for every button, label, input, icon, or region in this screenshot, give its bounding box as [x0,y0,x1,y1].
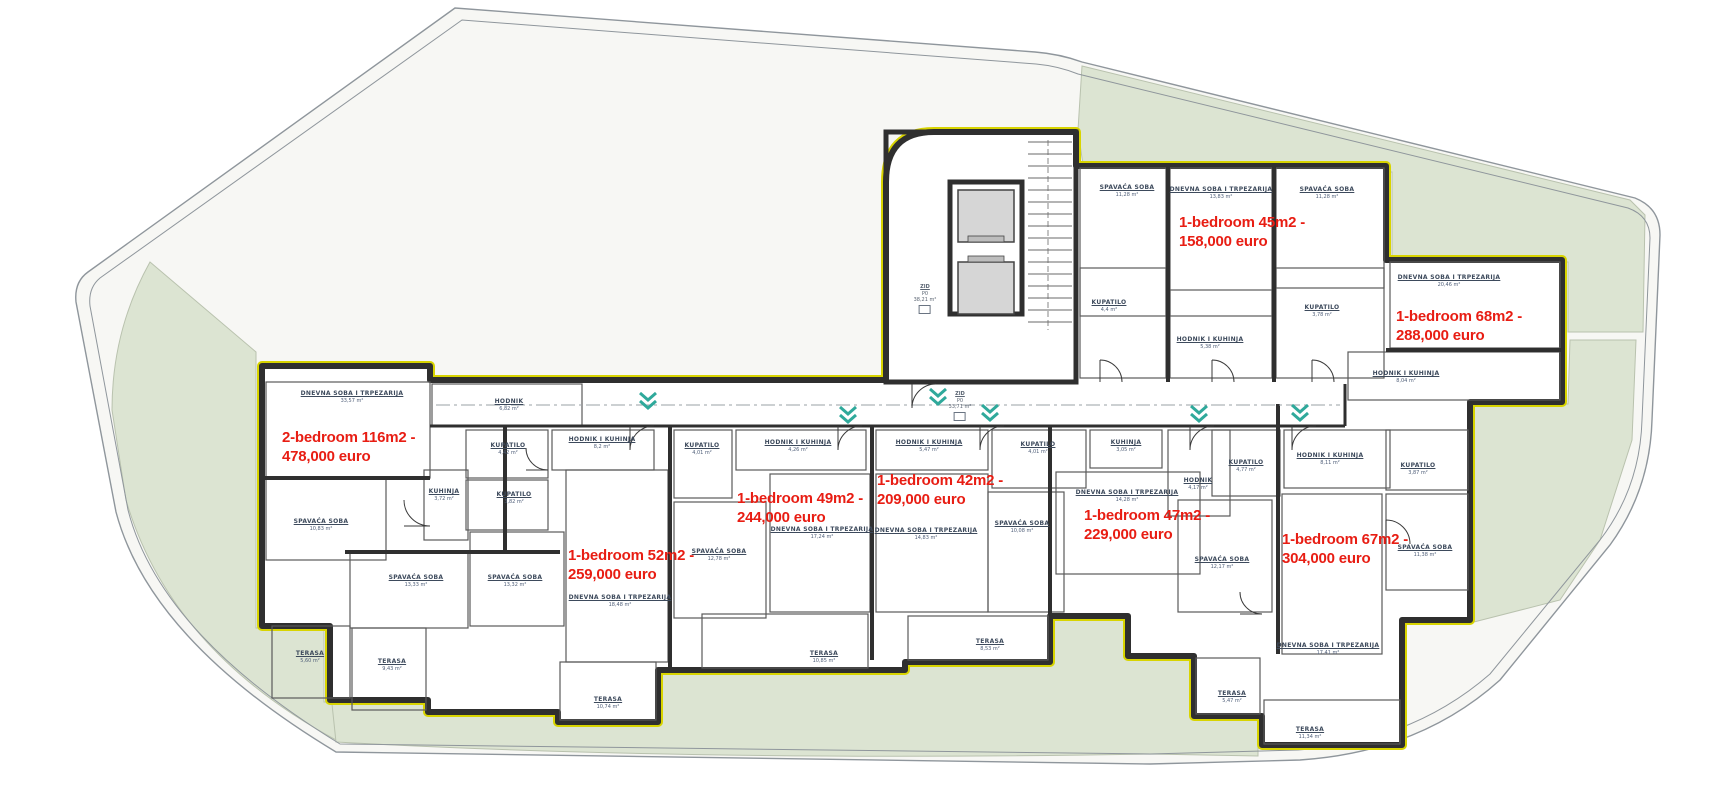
floor-plan-drawing [0,0,1734,800]
zone-label-line: 38,21 m² [914,297,937,304]
elevator-car-2 [958,262,1014,314]
zone-label-box [919,305,931,314]
zone-label-line: 33,71 m² [949,404,972,411]
zone-label: ZIDP038,21 m² [914,284,937,314]
zone-label-box [954,412,966,421]
elevator-door-2 [968,256,1004,262]
floor-plan-canvas: DNEVNA SOBA I TRPEZARIJA33,57 m²SPAVAĆA … [0,0,1734,800]
elevator-door-1 [968,236,1004,242]
elevator-car-1 [958,190,1014,242]
zone-label: ZIDP033,71 m² [949,391,972,421]
